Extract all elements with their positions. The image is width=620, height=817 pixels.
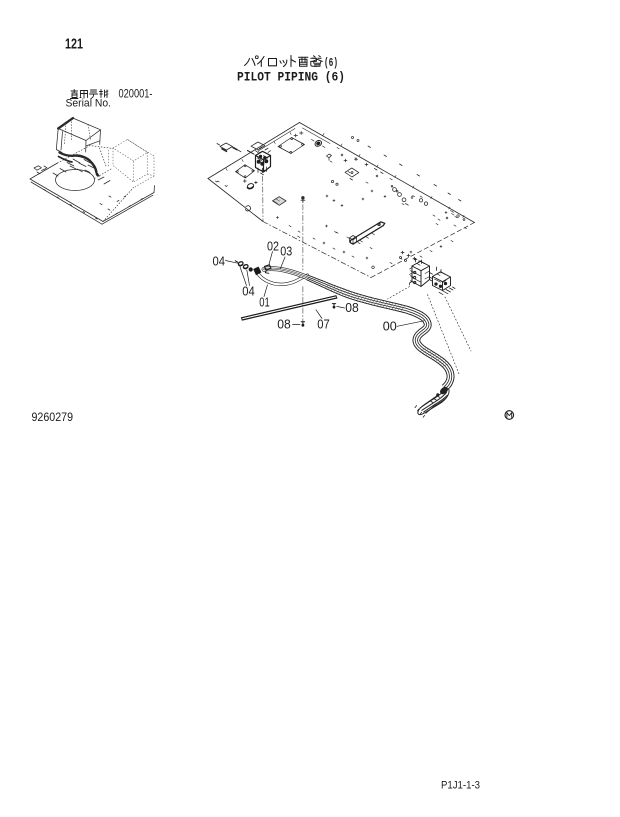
- svg-text:020001-: 020001-: [119, 89, 153, 101]
- svg-text:121: 121: [65, 36, 83, 53]
- svg-text:03: 03: [280, 245, 292, 259]
- svg-text:PILOT PIPING (6): PILOT PIPING (6): [237, 70, 345, 85]
- svg-text:08: 08: [345, 301, 359, 315]
- svg-text:07: 07: [317, 318, 330, 332]
- svg-text:01: 01: [259, 296, 270, 310]
- svg-text:04: 04: [242, 285, 255, 299]
- svg-text:04: 04: [213, 254, 226, 268]
- svg-text:Serial No.: Serial No.: [66, 98, 112, 110]
- svg-text:02: 02: [267, 239, 279, 253]
- svg-text:9260279: 9260279: [32, 410, 74, 424]
- svg-text:P1J1-1-3: P1J1-1-3: [441, 780, 480, 792]
- svg-text:00: 00: [383, 320, 397, 334]
- svg-text:(6): (6): [324, 57, 338, 70]
- svg-text:08: 08: [277, 318, 291, 332]
